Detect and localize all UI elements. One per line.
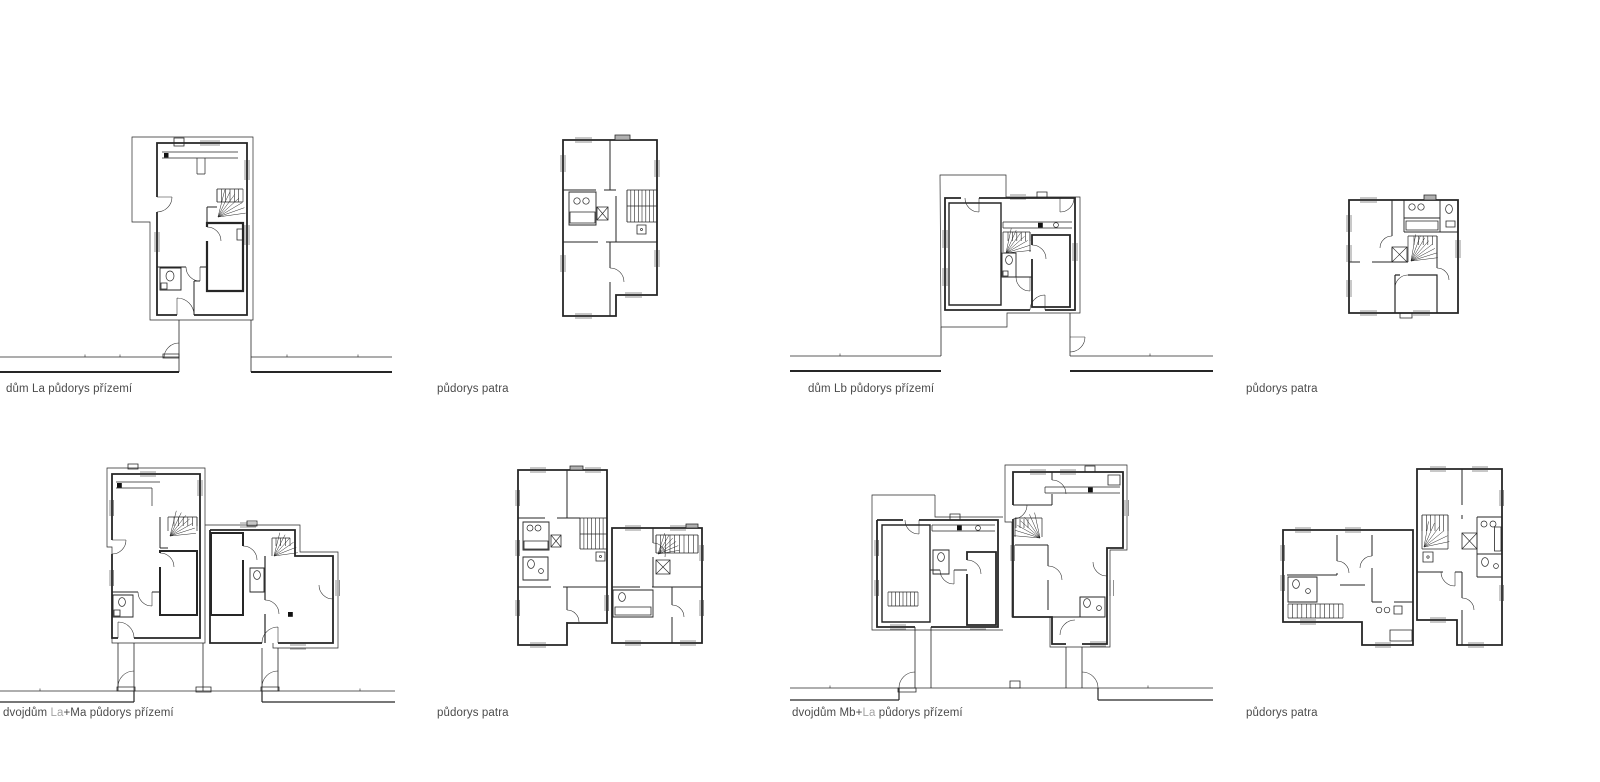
floor-plans-drawing: [0, 0, 1600, 782]
plan-la-ma-ground: [0, 464, 395, 702]
plan-lb-ground: [790, 175, 1213, 371]
label-lb-upper: půdorys patra: [1246, 383, 1318, 395]
plan-la-ground: [0, 137, 392, 372]
plan-la-upper: [561, 135, 659, 318]
label-mb-la-upper: půdorys patra: [1246, 707, 1318, 719]
plan-la-ma-upper: [516, 466, 704, 647]
plan-lb-upper: [1347, 195, 1460, 318]
plan-mb-la-ground: [790, 465, 1213, 700]
drawing-canvas: dům La půdorys přízemípůdorys patradům L…: [0, 0, 1600, 782]
label-lb-ground: dům Lb půdorys přízemí: [808, 383, 934, 395]
label-la-ma-upper: půdorys patra: [437, 707, 509, 719]
label-la-upper: půdorys patra: [437, 383, 509, 395]
label-mb-la-ground: dvojdům Mb+La půdorys přízemí: [792, 707, 963, 719]
plan-mb-la-upper: [1281, 467, 1504, 647]
label-la-ma-ground: dvojdům La+Ma půdorys přízemí: [3, 707, 174, 719]
label-la-ground: dům La půdorys přízemí: [6, 383, 132, 395]
